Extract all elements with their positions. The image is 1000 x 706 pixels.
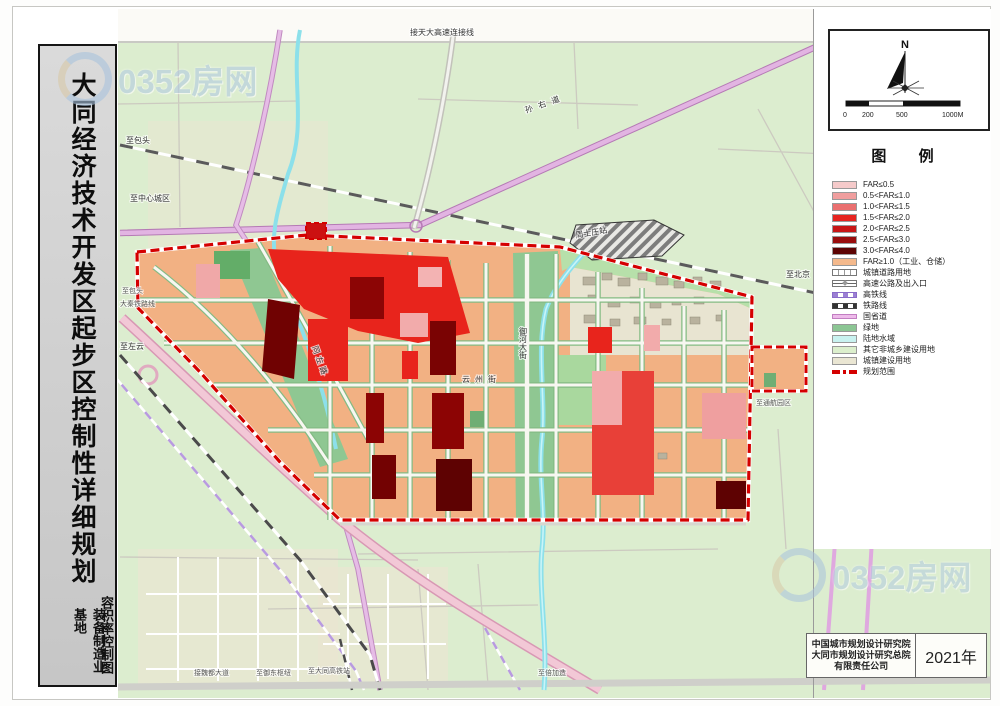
legend-item-far-3-0: 2.5<FAR≤3.0 (832, 234, 987, 245)
far-0-5-swatch (832, 181, 857, 189)
title-bar: 大同经济技术开发区起步区控制性详细规划 装备制造业基地 容积率控制图 (38, 44, 117, 687)
planning-scope-symbol (832, 370, 857, 374)
legend-item-water: 陆地水域 (832, 333, 987, 344)
map-label-yunzhou-street: 云州街 (462, 374, 501, 384)
map-label-expressway-connector: 接天大高速连接线 (410, 27, 474, 37)
far-industrial-swatch (832, 258, 857, 266)
plan-year: 2021年 (915, 634, 986, 677)
map-label-to-beijiazao: 至倍加造 (538, 668, 566, 677)
far-2-0-swatch (832, 214, 857, 222)
provincial-road-symbol (832, 314, 857, 319)
map-label-to-baotou-north: 至包头 (126, 135, 150, 145)
map-label-to-beijing: 至北京 (786, 269, 810, 279)
legend-item-far-1-0: 0.5<FAR≤1.0 (832, 190, 987, 201)
legend-item-highway: 高速公路及出入口 (832, 278, 987, 289)
map-label-yuhe-avenue: 御河大街 (519, 326, 528, 360)
legend-item-provincial-road: 国省道 (832, 311, 987, 322)
north-arrow-icon (887, 51, 924, 95)
scale-bar: 0 200 500 1000M (843, 101, 964, 119)
legend-item-urban-road: 城镇道路用地 (832, 267, 987, 278)
plan-sheet: 接天大高速连接线 孙右道 至北京 至包头 至中心城区 至包头 大秦铁路线 至左云… (0, 0, 1000, 706)
legend-item-far-industrial: FAR≥1.0（工业、仓储） (832, 256, 987, 267)
far-4-0-swatch (832, 247, 857, 255)
map-label-to-zuoyun: 至左云 (120, 341, 144, 351)
legend: FAR≤0.5 0.5<FAR≤1.0 1.0<FAR≤1.5 1.5<FAR≤… (832, 179, 987, 377)
legend-item-hsr: 高铁线 (832, 289, 987, 300)
legend-item-planning-scope: 规划范围 (832, 366, 987, 377)
legend-item-far-1-5: 1.0<FAR≤1.5 (832, 201, 987, 212)
compass-scale: N 0 200 500 1000M (830, 31, 984, 125)
legend-item-far-2-0: 1.5<FAR≤2.0 (832, 212, 987, 223)
far-3-0-swatch (832, 236, 857, 244)
map-label-to-aviation-park: 至通航园区 (756, 398, 791, 407)
urban-road-symbol (832, 269, 857, 276)
map-label-weidu-avenue: 接魏都大道 (194, 668, 229, 677)
legend-item-far-4-0: 3.0<FAR≤4.0 (832, 245, 987, 256)
right-panel: N 0 200 500 1000M (813, 9, 991, 698)
legend-item-urban-construction: 城镇建设用地 (832, 355, 987, 366)
urban-construction-swatch (832, 357, 857, 365)
hsr-line-symbol (832, 292, 857, 298)
scale-tick-1000: 1000M (942, 112, 964, 119)
legend-item-railway: 铁路线 (832, 300, 987, 311)
scale-tick-0: 0 (843, 112, 847, 119)
scale-tick-500: 500 (896, 112, 908, 119)
far-1-5-swatch (832, 203, 857, 211)
legend-item-far-0-5: FAR≤0.5 (832, 179, 987, 190)
title-block: 中国城市规划设计研究院 大同市规划设计研究总院 有限责任公司 2021年 (806, 633, 987, 678)
map-label-to-baotou-south: 至包头 (122, 286, 143, 295)
map-label-to-yudong-hub: 至御东枢纽 (256, 668, 291, 677)
far-2-5-swatch (832, 225, 857, 233)
far-1-0-swatch (832, 192, 857, 200)
highway-symbol (832, 280, 857, 287)
legend-title: 图 例 (814, 145, 991, 166)
scale-tick-200: 200 (862, 112, 874, 119)
map-label-daqin-railway: 大秦铁路线 (120, 299, 155, 308)
water-swatch (832, 335, 857, 343)
non-construction-swatch (832, 346, 857, 354)
plan-subtitle-map-type: 容积率控制图 (97, 596, 116, 674)
north-label: N (901, 39, 909, 51)
map-label-to-city-center: 至中心城区 (130, 193, 170, 203)
plan-title: 大同经济技术开发区起步区控制性详细规划 (64, 72, 100, 602)
railway-line-symbol (832, 303, 857, 309)
legend-item-far-2-5: 2.0<FAR≤2.5 (832, 223, 987, 234)
north-arrow-box: N 0 200 500 1000M (828, 29, 990, 131)
green-space-swatch (832, 324, 857, 332)
design-institute: 中国城市规划设计研究院 大同市规划设计研究总院 有限责任公司 (807, 634, 915, 677)
map-label-to-hsr-station: 至大同高铁站 (308, 666, 350, 675)
legend-item-non-construction: 其它非城乡建设用地 (832, 344, 987, 355)
legend-item-green-space: 绿地 (832, 322, 987, 333)
